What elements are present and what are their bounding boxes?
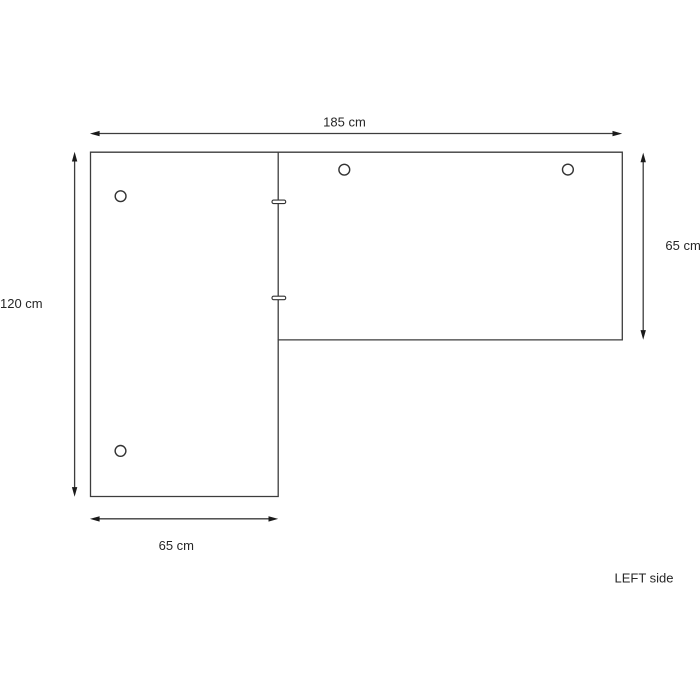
svg-text:65 cm: 65 cm xyxy=(159,538,194,553)
svg-text:LEFT side: LEFT side xyxy=(615,570,674,585)
svg-text:185 cm: 185 cm xyxy=(323,114,366,129)
svg-text:120 cm: 120 cm xyxy=(0,296,43,311)
svg-text:65 cm: 65 cm xyxy=(665,238,700,253)
